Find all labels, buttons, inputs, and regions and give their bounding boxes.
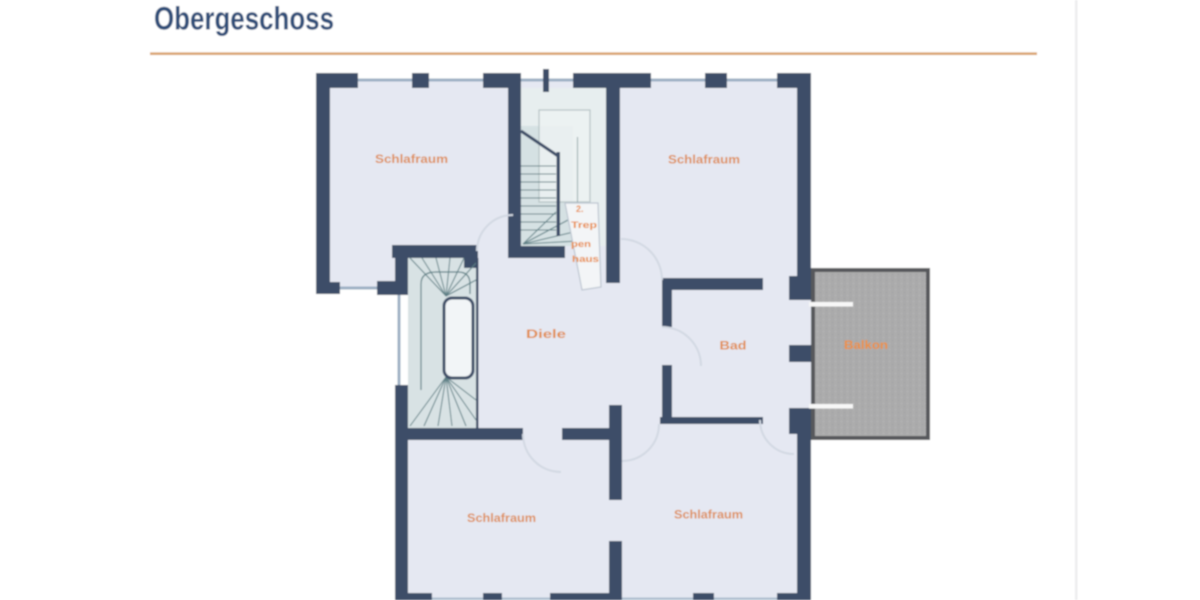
svg-text:Diele: Diele bbox=[526, 329, 566, 341]
svg-text:Bad: Bad bbox=[720, 341, 747, 353]
svg-text:Schlafraum: Schlafraum bbox=[375, 154, 448, 166]
svg-text:Trep: Trep bbox=[571, 220, 598, 230]
svg-text:Schlafraum: Schlafraum bbox=[668, 155, 740, 167]
svg-text:Schlafraum: Schlafraum bbox=[467, 513, 536, 525]
svg-text:haus: haus bbox=[572, 254, 599, 264]
svg-text:Schlafraum: Schlafraum bbox=[674, 510, 743, 522]
svg-text:2.: 2. bbox=[576, 204, 584, 214]
svg-text:pen: pen bbox=[571, 239, 591, 249]
svg-text:Balkon: Balkon bbox=[844, 340, 888, 352]
svg-text:Obergeschoss: Obergeschoss bbox=[154, 1, 334, 37]
